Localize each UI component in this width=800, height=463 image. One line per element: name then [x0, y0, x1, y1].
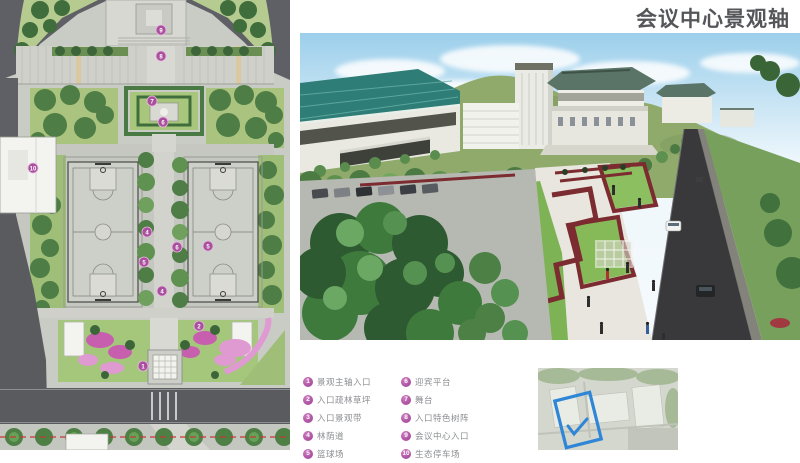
legend-number-badge: 9 [401, 431, 411, 441]
legend-item-label: 林荫道 [317, 430, 344, 442]
legend-item: 2入口疏林草坪 [303, 391, 371, 409]
legend-item: 6迎宾平台 [401, 373, 469, 391]
legend-item: 8入口特色树阵 [401, 409, 469, 427]
legend-item: 4林荫道 [303, 427, 371, 445]
legend-number-badge: 4 [303, 431, 313, 441]
legend-item: 7舞台 [401, 391, 469, 409]
paved-plaza-band [16, 46, 274, 84]
legend-number-badge: 10 [401, 449, 411, 459]
plan-marker-5: 5 [203, 241, 213, 251]
legend-number-badge: 5 [303, 449, 313, 459]
presentation-page: 9876104655421 会议中心景观轴 [0, 0, 800, 450]
plan-marker-2: 2 [194, 321, 204, 331]
legend-item-label: 入口特色树阵 [415, 412, 469, 424]
page-title: 会议中心景观轴 [390, 3, 790, 33]
legend-item: 9会议中心入口 [401, 427, 469, 445]
plan-marker-4: 4 [142, 227, 152, 237]
plaza-parking [300, 169, 552, 340]
legend-number-badge: 6 [401, 377, 411, 387]
entrance-garden [58, 318, 285, 385]
legend-number-badge: 3 [303, 413, 313, 423]
plan-marker-6: 6 [172, 242, 182, 252]
svg-text:10: 10 [30, 166, 37, 172]
legend-item-label: 会议中心入口 [415, 430, 469, 442]
legend-number-badge: 2 [303, 395, 313, 405]
legend-item-label: 舞台 [415, 394, 433, 406]
legend-item: 3入口景观带 [303, 409, 371, 427]
legend-item: 5篮球场 [303, 445, 371, 463]
dark-car [696, 285, 715, 297]
site-plan: 9876104655421 [0, 0, 290, 450]
building-west [0, 137, 56, 213]
legend-item-label: 入口疏林草坪 [317, 394, 371, 406]
road-south [0, 388, 290, 424]
car-small [696, 177, 703, 182]
plan-marker-9: 9 [156, 25, 166, 35]
legend-item-label: 景观主轴入口 [317, 376, 371, 388]
plan-marker-4: 4 [157, 286, 167, 296]
plan-marker-10: 10 [28, 163, 38, 173]
legend-number-badge: 8 [401, 413, 411, 423]
plan-marker-7: 7 [147, 96, 157, 106]
legend-number-badge: 1 [303, 377, 313, 387]
site-key-map [538, 368, 678, 450]
building-entry-plaza [106, 0, 190, 46]
plan-marker-6: 6 [158, 117, 168, 127]
plan-marker-1: 1 [138, 361, 148, 371]
legend-item-label: 入口景观带 [317, 412, 362, 424]
perspective-rendering [300, 33, 800, 340]
white-van [666, 221, 681, 231]
plan-marker-5: 5 [139, 257, 149, 267]
street-tree-strip [0, 424, 290, 450]
legend-item: 1景观主轴入口 [303, 373, 371, 391]
legend-number-badge: 7 [401, 395, 411, 405]
legend-item: 10生态停车场 [401, 445, 469, 463]
legend-item-label: 迎宾平台 [415, 376, 451, 388]
plan-marker-8: 8 [156, 51, 166, 61]
